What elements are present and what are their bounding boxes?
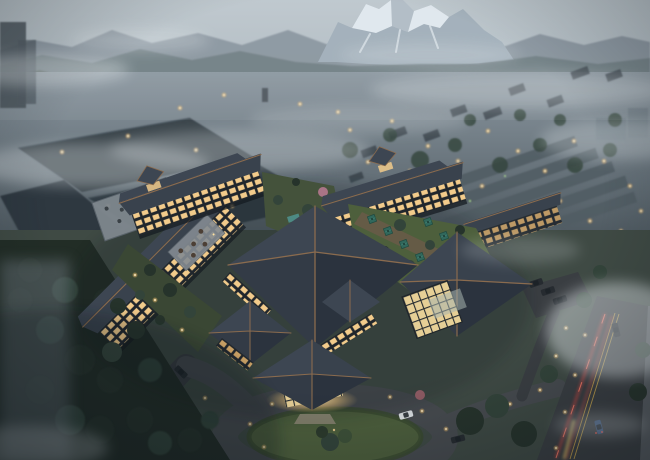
vignette [0,0,650,460]
rendering-canvas [0,0,650,460]
